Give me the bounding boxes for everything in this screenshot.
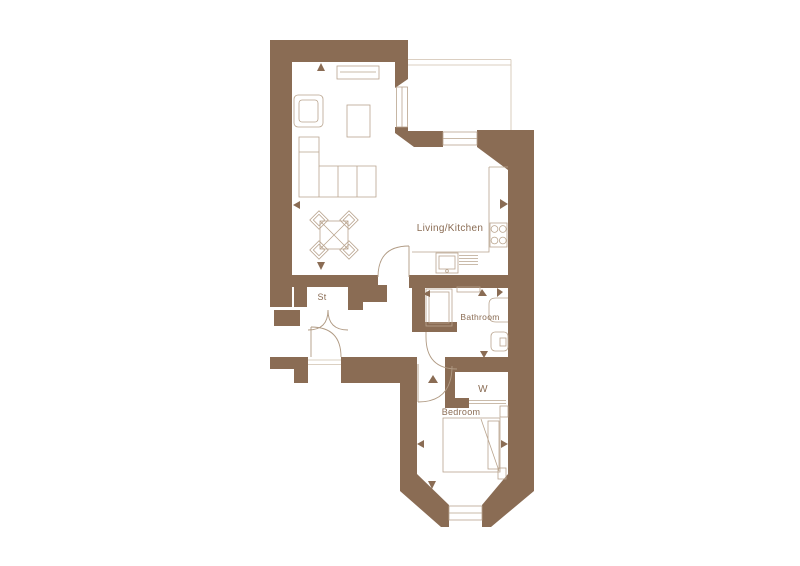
bed (443, 418, 500, 472)
marker-kitchen-right (500, 199, 508, 209)
hob (490, 223, 507, 247)
nightstand (500, 406, 508, 417)
window-bedroom (449, 506, 482, 520)
coffee-table (347, 105, 370, 137)
wall-storage-right-pillar (348, 285, 387, 310)
label-storage: St (317, 292, 326, 302)
window-kitchen (443, 132, 477, 145)
floor-plan: Living/Kitchen Bathroom Bedroom St W (0, 0, 800, 566)
marker-corridor (428, 375, 438, 383)
dining-table (320, 221, 348, 249)
wall-kitchen-top-left (395, 127, 443, 147)
wall-bathroom-left (412, 288, 425, 322)
wall-right (508, 160, 534, 474)
marker-bed-right (501, 440, 508, 448)
label-bedroom: Bedroom (442, 407, 481, 417)
sink (436, 253, 458, 273)
label-wardrobe: W (478, 384, 488, 395)
marker-living-left (293, 201, 300, 209)
wall-bay-left (400, 470, 449, 527)
drainer (459, 256, 478, 265)
wardrobe-front (469, 401, 506, 404)
exterior-lines (408, 60, 511, 131)
armchair (294, 95, 323, 127)
entrance-threshold (308, 360, 341, 365)
wall-bathroom-bottom (445, 357, 534, 372)
label-bathroom: Bathroom (460, 312, 499, 322)
door-living (378, 246, 409, 277)
wall-living-left (270, 40, 292, 307)
marker-living-top (317, 63, 325, 71)
floor-plan-page: Living/Kitchen Bathroom Bedroom St W (0, 0, 800, 566)
terrace-line (408, 60, 511, 131)
window-living (397, 87, 408, 127)
kitchen-counter (412, 167, 508, 252)
marker-living-bottom (317, 262, 325, 270)
marker-bed-left (417, 440, 424, 448)
marker-bath-top (478, 289, 487, 296)
marker-bath-bottom (480, 351, 488, 358)
wall-kitchen-bottom (409, 275, 508, 288)
tv-unit (337, 66, 379, 79)
door-entrance (311, 327, 341, 357)
sofa (299, 137, 376, 197)
wall-bay-right (482, 470, 534, 527)
wall-hall-bottom-left (270, 357, 308, 383)
wall-storage-left-pillar (294, 285, 307, 307)
wall-shower-stub (412, 322, 457, 332)
marker-bath-top-right (497, 288, 503, 297)
nightstand (498, 468, 506, 479)
wall-hall-bottom-right (341, 357, 417, 474)
wall-hall-left-stub (274, 310, 300, 326)
label-living-kitchen: Living/Kitchen (417, 223, 483, 234)
wall-above-window (395, 62, 408, 88)
toilet (491, 332, 508, 351)
